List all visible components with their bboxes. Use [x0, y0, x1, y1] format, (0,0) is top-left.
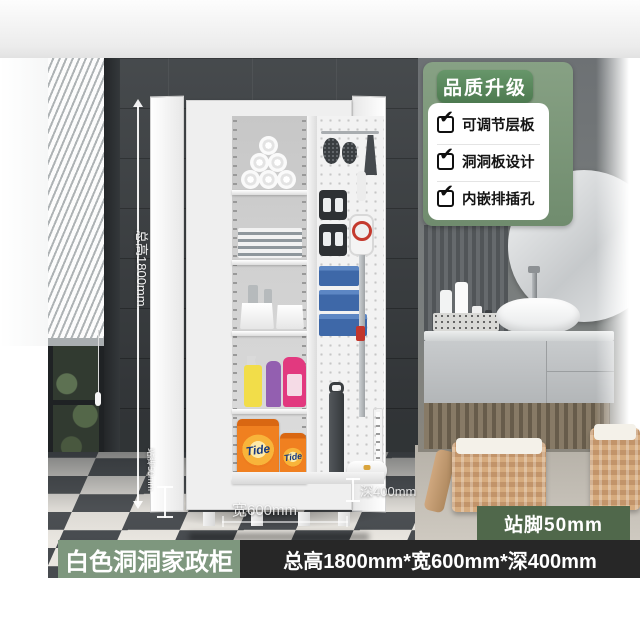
feature-row: ✔ 内嵌排插孔 [437, 181, 540, 216]
spray-bottle-trigger [255, 358, 265, 363]
cabinet-foot [203, 512, 215, 526]
feature-label: 洞洞板设计 [462, 151, 535, 172]
vanity-countertop [424, 331, 614, 341]
width-dimension-tick [346, 516, 348, 527]
product-specs-banner: 总高1800mm*宽600mm*深400mm [240, 540, 640, 578]
total-height-label: 总高1800mm [133, 230, 152, 307]
shelf-pin-holes [302, 120, 306, 478]
rolled-towel [241, 170, 260, 189]
duster [364, 135, 377, 175]
basket-liner [594, 424, 636, 440]
blue-bin [319, 266, 359, 286]
check-icon: ✔ [439, 182, 454, 200]
rattan-basket [452, 442, 546, 512]
depth-dimension-line [352, 478, 354, 502]
checkbox-icon: ✔ [437, 116, 454, 133]
cabinet-foot [338, 512, 350, 526]
feature-row: ✔ 洞洞板设计 [437, 144, 540, 179]
organizer-item [335, 232, 343, 246]
feature-row: ✔ 可调节层板 [437, 107, 540, 141]
check-icon: ✔ [439, 145, 454, 163]
blinds-rail [48, 338, 110, 346]
spray-bottle [244, 365, 262, 407]
foot-dimension-tick [157, 486, 173, 488]
width-dimension-tick [222, 516, 224, 527]
feature-label: 可调节层板 [462, 114, 535, 135]
detergent-bag: Tide [237, 419, 279, 479]
product-name-banner: 白色洞洞家政柜 [58, 540, 240, 578]
vanity-drawer-divider [546, 341, 547, 403]
rolled-towel [277, 170, 296, 189]
ceiling [0, 0, 640, 58]
checkbox-icon: ✔ [437, 190, 454, 207]
storage-bin-white [240, 303, 274, 329]
stick-vacuum-handle [357, 171, 366, 201]
pegboard-column [317, 116, 384, 484]
dimension-arrow-down [133, 501, 143, 509]
jug-label [287, 374, 302, 396]
power-strip [373, 408, 383, 464]
blue-bin [319, 290, 363, 311]
product-showcase: Tide Tide [0, 0, 640, 640]
cabinet-interior: Tide Tide [232, 116, 384, 484]
organizer-item [335, 198, 343, 212]
feature-label: 内嵌排插孔 [462, 188, 535, 209]
shelf [232, 409, 307, 414]
stick-vacuum-clip [356, 326, 365, 341]
detergent-bottle-purple [266, 361, 281, 407]
stand-feet-badge: 站脚50mm [477, 506, 630, 540]
depth-dimension-tick [346, 478, 360, 480]
storage-bin-white [276, 305, 304, 329]
width-dimension-line [222, 521, 348, 523]
center-divider [307, 116, 317, 484]
organizer-item [323, 232, 331, 246]
feature-card: ✔ 可调节层板 ✔ 洞洞板设计 ✔ 内嵌排插孔 [428, 103, 549, 220]
folded-towels-stack [238, 228, 302, 258]
mesh-glove [323, 138, 340, 164]
stick-vacuum-ring [352, 221, 372, 241]
foot-dimension-line [164, 486, 166, 518]
hook-organizer [319, 224, 347, 256]
shelf-column: Tide Tide [232, 116, 307, 484]
venetian-blinds [48, 58, 106, 342]
dimension-arrow-up [133, 99, 143, 107]
foot-height-label: 站脚50mm [145, 448, 158, 491]
depth-label: 深400mm [360, 481, 416, 500]
shelf [232, 331, 307, 336]
vanity-cabinet [424, 341, 614, 403]
foot-dimension-tick [157, 516, 173, 518]
rattan-basket-small [590, 428, 640, 510]
basket-liner [456, 438, 542, 454]
pendant-bulb [95, 392, 101, 406]
hook-organizer [319, 190, 347, 220]
hanging-rod [321, 131, 379, 134]
shelf [232, 260, 307, 265]
rolled-towel [259, 170, 278, 189]
terrazzo-tray [433, 313, 499, 331]
storage-cabinet: Tide Tide [148, 92, 388, 528]
right-edge-fade [596, 58, 640, 452]
vessel-sink [496, 298, 580, 334]
robot-vacuum-button [364, 465, 371, 470]
checkbox-icon: ✔ [437, 153, 454, 170]
width-label: 宽600mm [232, 499, 297, 520]
pendant-cord [98, 330, 99, 394]
shelf [232, 190, 307, 195]
quality-header-badge: 品质升级 [437, 70, 533, 103]
mesh-glove [342, 142, 357, 164]
check-icon: ✔ [439, 108, 454, 126]
depth-dimension-tick [346, 500, 360, 502]
left-wall-white [0, 346, 48, 578]
window-frame [104, 58, 120, 470]
cabinet-body: Tide Tide [186, 100, 352, 510]
faucet-spout [528, 266, 540, 273]
stick-vacuum-motor [349, 214, 374, 256]
cabinet-foot [298, 512, 310, 526]
handheld-vacuum [329, 392, 344, 484]
organizer-item [323, 198, 331, 212]
